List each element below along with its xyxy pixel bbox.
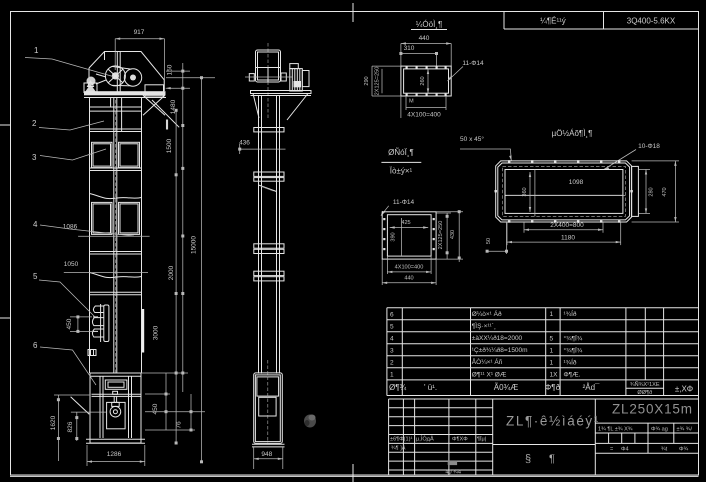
svg-text:Ø¶¹¹ X¹ ØÆ: Ø¶¹¹ X¹ ØÆ <box>472 371 507 378</box>
svg-text:430: 430 <box>450 230 456 239</box>
svg-text:290: 290 <box>364 76 370 85</box>
svg-text:390: 390 <box>391 232 397 241</box>
svg-text:3: 3 <box>32 153 37 162</box>
svg-text:1480: 1480 <box>170 99 177 114</box>
svg-text:1050: 1050 <box>64 261 79 268</box>
svg-text:948: 948 <box>261 451 272 458</box>
svg-text:1: 1 <box>550 311 554 318</box>
svg-text:Φ¶XΦ: Φ¶XΦ <box>452 437 468 443</box>
svg-text:2: 2 <box>32 119 37 128</box>
svg-text:440: 440 <box>419 35 430 42</box>
svg-text:5: 5 <box>33 272 38 281</box>
svg-text:±,XΦ: ±,XΦ <box>675 385 693 394</box>
svg-text:ØØ¶ð: ØØ¶ð <box>637 389 652 396</box>
svg-text:2X125=250: 2X125=250 <box>438 221 444 250</box>
svg-text:ÅÒ¼×¹ Áñ: ÅÒ¼×¹ Áñ <box>472 357 503 366</box>
svg-text:470: 470 <box>662 187 668 196</box>
svg-text:50: 50 <box>486 238 492 244</box>
svg-text:76: 76 <box>176 421 183 429</box>
svg-text:310: 310 <box>404 45 415 52</box>
svg-text:4: 4 <box>33 220 38 229</box>
svg-text:2X400=800: 2X400=800 <box>550 222 584 229</box>
svg-text:440: 440 <box>404 276 413 282</box>
svg-text:425: 425 <box>401 220 410 226</box>
svg-text:¹Ç±ð¾¼ð8=1500m: ¹Ç±ð¾¼ð8=1500m <box>472 346 528 354</box>
svg-text:µ,ÎÒдÅ: µ,ÎÒдÅ <box>416 436 434 443</box>
svg-text:826: 826 <box>67 421 74 432</box>
svg-text:11-Φ14: 11-Φ14 <box>462 60 484 67</box>
svg-text:6: 6 <box>390 312 394 319</box>
svg-text:I: I <box>165 118 169 134</box>
svg-text:¹¾Íð: ¹¾Íð <box>564 309 577 318</box>
svg-text:2: 2 <box>390 360 394 367</box>
svg-text:1620: 1620 <box>50 415 57 430</box>
svg-text:Φ4: Φ4 <box>621 447 629 453</box>
svg-text:3: 3 <box>390 348 394 355</box>
svg-text:¼¶É¹¹ý: ¼¶É¹¹ý <box>540 17 566 26</box>
svg-text:²Åd¯: ²Åd¯ <box>583 383 600 392</box>
svg-text:§: § <box>525 453 531 465</box>
svg-text:' ü¹.: ' ü¹. <box>424 383 437 392</box>
svg-text:Ã0¾Æ: Ã0¾Æ <box>494 383 518 392</box>
svg-text:10-Φ18: 10-Φ18 <box>638 143 660 150</box>
svg-text:150: 150 <box>167 64 174 75</box>
svg-text:Φ¾ ag: Φ¾ ag <box>651 427 668 433</box>
svg-text:M: M <box>409 99 414 105</box>
svg-text:°¾¶Ï¾: °¾¶Ï¾ <box>564 346 583 354</box>
svg-text:1X: 1X <box>550 371 559 378</box>
svg-text:Ø¼ò×¹ Áð: Ø¼ò×¹ Áð <box>472 309 502 318</box>
svg-text:50 x 45°: 50 x 45° <box>460 135 484 143</box>
svg-text:1180: 1180 <box>561 235 575 242</box>
svg-text:1: 1 <box>550 347 554 354</box>
svg-text:11-Φ14: 11-Φ14 <box>393 199 415 206</box>
svg-text:±¾ ¾/: ±¾ ¾/ <box>677 427 693 433</box>
svg-text:2000: 2000 <box>168 265 175 280</box>
svg-text:280: 280 <box>649 187 655 196</box>
svg-text:1286: 1286 <box>107 451 122 458</box>
svg-text:±àXX¼ð18=2000: ±àXX¼ð18=2000 <box>472 334 523 342</box>
svg-text:436: 436 <box>239 140 250 147</box>
svg-text:3000: 3000 <box>153 325 160 340</box>
svg-text:1: 1 <box>550 359 554 366</box>
svg-text:450: 450 <box>66 318 73 329</box>
svg-text:Ø¶¾: Ø¶¾ <box>389 383 407 392</box>
svg-text:Ïò±ý×¹: Ïò±ý×¹ <box>390 167 413 176</box>
svg-text:1500: 1500 <box>166 138 173 153</box>
svg-text:917: 917 <box>134 29 145 36</box>
svg-text:¶: ¶ <box>549 453 555 465</box>
svg-text:5: 5 <box>390 324 394 331</box>
svg-text:¼ÓöÌ¸¶: ¼ÓöÌ¸¶ <box>416 20 443 29</box>
svg-text:¾¶ ]Å: ¾¶ ]Å <box>391 445 406 452</box>
svg-text:¶ÌŞ·×¹¹´¸: ¶ÌŞ·×¹¹´¸ <box>472 321 496 330</box>
svg-text:ZL¶·ê½ìáéý¹: ZL¶·ê½ìáéý¹ <box>506 414 600 429</box>
svg-text:2X125=250: 2X125=250 <box>375 67 381 96</box>
svg-text:µÖ½Áõ¶Ì¸¶: µÖ½Áõ¶Ì¸¶ <box>552 129 593 138</box>
svg-text:¾t: ¾t <box>661 447 668 453</box>
svg-text:Φ¶ð: Φ¶ð <box>545 383 561 392</box>
svg-text:=: = <box>610 447 613 453</box>
svg-text:1¾ ¶L ±¾ X¾: 1¾ ¶L ±¾ X¾ <box>598 427 633 433</box>
svg-text:ZL250X15m: ZL250X15m <box>612 402 693 417</box>
svg-text:°¾¶Ï¾: °¾¶Ï¾ <box>564 334 583 342</box>
svg-text:6: 6 <box>33 341 38 350</box>
svg-text:¶Ïμ|: ¶Ïμ| <box>477 436 486 443</box>
svg-text:ØÑóÏ¸¶: ØÑóÏ¸¶ <box>388 148 414 157</box>
svg-text:260: 260 <box>420 76 426 85</box>
svg-text:4X100=400: 4X100=400 <box>407 112 441 119</box>
svg-text:±6¶Φ(1)¹: ±6¶Φ(1)¹ <box>390 437 412 443</box>
svg-text:4X100=400: 4X100=400 <box>395 265 424 271</box>
svg-text:5: 5 <box>550 335 554 342</box>
svg-text:4: 4 <box>390 336 394 343</box>
svg-text:1: 1 <box>34 46 39 55</box>
svg-text:40 ¾4: 40 ¾4 <box>445 470 461 476</box>
svg-text:¹¾Íð: ¹¾Íð <box>564 357 577 366</box>
svg-text:15000: 15000 <box>191 236 198 254</box>
svg-text:Φ¶Æ.: Φ¶Æ. <box>564 371 581 378</box>
svg-text:1: 1 <box>390 372 394 379</box>
svg-text:¾Ñ¾X¹1XE: ¾Ñ¾X¹1XE <box>630 381 660 388</box>
svg-text:1098: 1098 <box>569 179 584 186</box>
svg-text:Φ¾: Φ¾ <box>679 447 688 453</box>
svg-text:3Q400-5.6ΚΧ: 3Q400-5.6ΚΧ <box>627 17 676 26</box>
svg-text:450: 450 <box>152 403 159 414</box>
